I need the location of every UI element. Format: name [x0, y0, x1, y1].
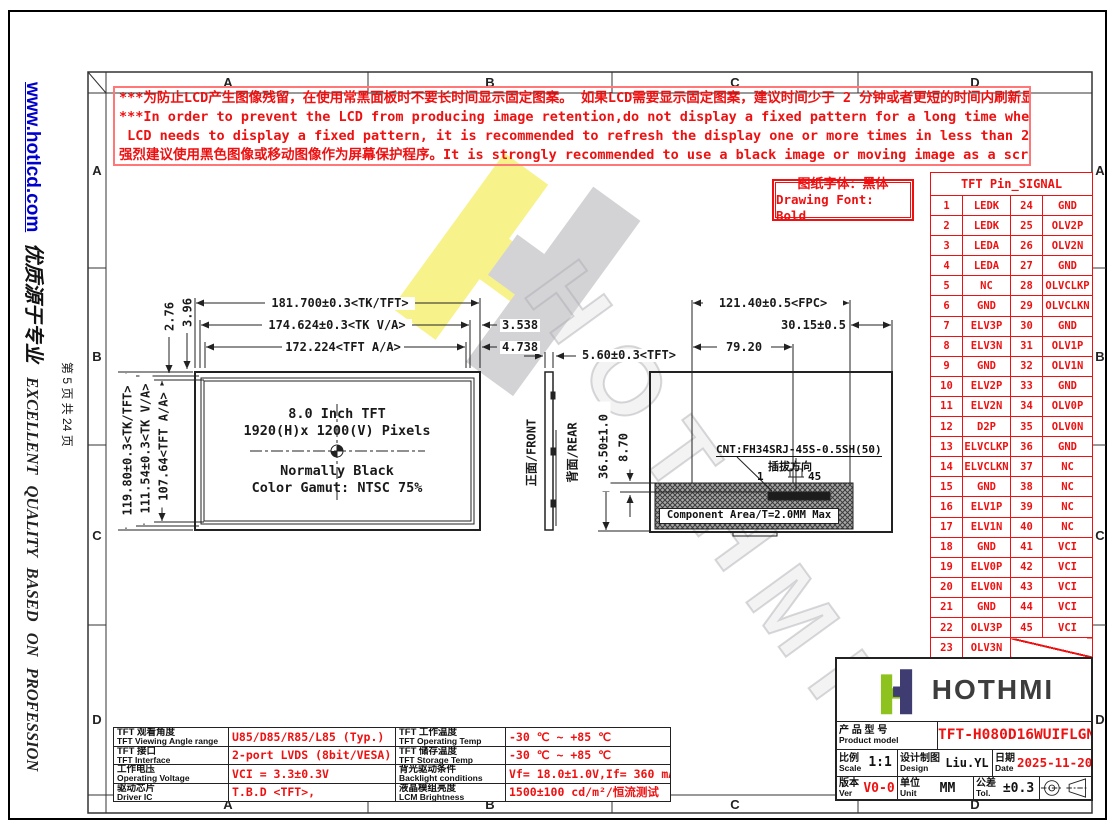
unit-cell: 单位 Unit MM — [897, 777, 973, 799]
spec-label-en: TFT Operating Temp — [399, 737, 502, 746]
pin-row: 22OLV3P45VCI — [931, 617, 1093, 637]
pin-number: 28 — [1011, 276, 1043, 296]
frame-row-label-right: B — [1093, 349, 1107, 364]
pin-signal: OLV0P — [1043, 396, 1093, 416]
panel-size-line2: 1920(H)x 1200(V) Pixels — [237, 423, 437, 440]
spec-row: TFT 观看角度TFT Viewing Angle rangeU85/D85/R… — [114, 728, 671, 747]
pin-number: 35 — [1011, 417, 1043, 437]
hothmi-logo-icon — [874, 664, 926, 716]
pin-signal: VCI — [1043, 617, 1093, 637]
spec-value-cell: VCI = 3.3±0.3V — [229, 765, 396, 784]
pin-signal: OLV2N — [1043, 236, 1093, 256]
pin-signal: OLV1P — [1043, 336, 1093, 356]
spec-label-cell: 背光驱动条件Backlight conditions — [396, 765, 506, 784]
version-cell: 版本 Ver V0-0 — [837, 777, 897, 799]
spec-value: VCI = 3.3±0.3V — [232, 767, 392, 781]
date-label-en: Date — [995, 764, 1015, 774]
pin-end-number: 45 — [808, 470, 821, 483]
spec-value-cell: -30 ℃ ~ +85 ℃ — [506, 728, 671, 747]
pin-number: 23 — [931, 638, 963, 658]
pin-number: 21 — [931, 597, 963, 617]
connector-part-number: CNT:FH34SRJ-45S-0.5SH(50) — [716, 443, 882, 457]
pin-number: 31 — [1011, 336, 1043, 356]
spec-value: 1500±100 cd/m²/恒流测试 — [509, 784, 667, 800]
pin-row: 12D2P35OLV0N — [931, 417, 1093, 437]
slogan-english: EXCELLENT QUALITY BASED ON PROFESSION — [23, 377, 42, 771]
spec-label-cell: 驱动芯片Driver IC — [114, 783, 229, 802]
pin-row: 9GND32OLV1N — [931, 356, 1093, 376]
slogan-chinese: 优质源于专业 — [22, 243, 44, 363]
dim-fpc-right: 30.15±0.5 — [760, 319, 848, 332]
pin-signal: GND — [1043, 196, 1093, 216]
spec-row: TFT 接口TFT Interface2-port LVDS (8bit/VES… — [114, 746, 671, 765]
dim-connector-offset: 8.70 — [618, 426, 631, 470]
model-label-cell: 产 品 型 号 Product model — [837, 722, 937, 749]
spec-label-cell: TFT 观看角度TFT Viewing Angle range — [114, 728, 229, 747]
pin-number: 19 — [931, 557, 963, 577]
dim-top-offset-2: 2.76 — [164, 297, 177, 337]
pin-number: 12 — [931, 417, 963, 437]
pin-number: 11 — [931, 396, 963, 416]
pin-signal: OLVCLKN — [1043, 296, 1093, 316]
pin-number: 3 — [931, 236, 963, 256]
pin-number: 18 — [931, 537, 963, 557]
pin-row: 23OLV3N — [931, 638, 1093, 658]
pin-signal: OLV3N — [963, 638, 1011, 658]
pin-number: 29 — [1011, 296, 1043, 316]
version-value: V0-0 — [863, 781, 894, 796]
pin-signal: NC — [1043, 477, 1093, 497]
pin-number: 32 — [1011, 356, 1043, 376]
spec-label-cell: 液晶模组亮度LCM Brightness — [396, 783, 506, 802]
pin-signal: ELV2P — [963, 376, 1011, 396]
pin-number: 38 — [1011, 477, 1043, 497]
spec-label-en: TFT Interface — [117, 756, 225, 765]
panel-size-line1: 8.0 Inch TFT — [237, 406, 437, 423]
designer-name: Liu.YL — [945, 756, 988, 770]
pin-row: 21GND44VCI — [931, 597, 1093, 617]
pin-signal: OLV1N — [1043, 356, 1093, 376]
pin-number: 7 — [931, 316, 963, 336]
dim-right-offset-1: 3.538 — [500, 319, 540, 332]
tolerance-label-en: Tol. — [976, 789, 996, 799]
design-label-en: Design — [900, 764, 940, 774]
spec-value: -30 ℃ ~ +85 ℃ — [509, 748, 667, 762]
pin-number: 37 — [1011, 457, 1043, 477]
pin-signal: OLV3P — [963, 617, 1011, 637]
pin-signal: ELV1P — [963, 497, 1011, 517]
model-value-cell: TFT-H080D16WUIFLGN40 — [937, 722, 1091, 749]
website-link[interactable]: www.hotlcd.com — [22, 82, 43, 232]
unit-label: 单位 Unit — [898, 778, 920, 799]
scale-value: 1:1 — [868, 755, 891, 770]
panel-mode-text: Normally Black Color Gamut: NTSC 75% — [237, 463, 437, 497]
pin-signal: ELV1N — [963, 517, 1011, 537]
pin-number: 17 — [931, 517, 963, 537]
pin-signal: ELVCLKN — [963, 457, 1011, 477]
pin-signal: GND — [1043, 256, 1093, 276]
pin-signal-table: TFT Pin_SIGNAL 1LEDK24GND2LEDK25OLV2P3LE… — [930, 172, 1093, 658]
dim-outline-height: 119.80±0.3<TK/TFT> — [122, 374, 135, 528]
product-model: TFT-H080D16WUIFLGN40 — [938, 727, 1091, 743]
pin-number: 14 — [931, 457, 963, 477]
unit-value: MM — [940, 781, 956, 796]
pin-signal: ELV3N — [963, 336, 1011, 356]
pin-signal: OLV2P — [1043, 216, 1093, 236]
page-number: 第 5 页 共 24 页 — [59, 362, 76, 482]
pin-table-title: TFT Pin_SIGNAL — [931, 173, 1093, 196]
pin-number: 39 — [1011, 497, 1043, 517]
spec-value-cell: T.B.D <TFT>, — [229, 783, 396, 802]
frame-row-label-right: A — [1093, 163, 1107, 178]
pin-signal: GND — [963, 597, 1011, 617]
pin-number: 13 — [931, 437, 963, 457]
dim-va-width: 174.624±0.3<TK V/A> — [262, 319, 412, 332]
pin-row: 7ELV3P30GND — [931, 316, 1093, 336]
pin-number: 26 — [1011, 236, 1043, 256]
pin-row: 13ELVCLKP36GND — [931, 437, 1093, 457]
pin-number: 9 — [931, 356, 963, 376]
pin-row: 16ELV1P39NC — [931, 497, 1093, 517]
spec-value: 2-port LVDS (8bit/VESA) — [232, 748, 392, 762]
spec-label-cell: TFT 储存温度TFT Storage Temp — [396, 746, 506, 765]
frame-row-label-left: A — [89, 163, 105, 178]
pin-number: 2 — [931, 216, 963, 236]
version-label: 版本 Ver — [837, 778, 859, 799]
spec-label-en: Driver IC — [117, 793, 225, 802]
pin-number: 43 — [1011, 577, 1043, 597]
pin-number: 41 — [1011, 537, 1043, 557]
spec-value-cell: U85/D85/R85/L85 (Typ.) — [229, 728, 396, 747]
spec-value-cell: Vf= 18.0±1.0V,If= 360 mA — [506, 765, 671, 784]
spec-value-cell: -30 ℃ ~ +85 ℃ — [506, 746, 671, 765]
pin-signal: NC — [1043, 497, 1093, 517]
pin-number: 8 — [931, 336, 963, 356]
pin-signal: ELV2N — [963, 396, 1011, 416]
pin-signal: GND — [963, 296, 1011, 316]
frame-row-label-right: C — [1093, 528, 1107, 543]
version-label-en: Ver — [839, 789, 859, 799]
pin-number: 16 — [931, 497, 963, 517]
pin-signal: LEDK — [963, 216, 1011, 236]
pin-number: 6 — [931, 296, 963, 316]
dim-aa-height: 107.64<TFT A/A> — [158, 386, 171, 508]
design-label: 设计制图 Design — [898, 753, 940, 774]
dim-outline-width: 181.700±0.3<TK/TFT> — [265, 297, 415, 310]
sidebar-vertical-text: www.hotlcd.com 优质源于专业 EXCELLENT QUALITY … — [21, 82, 50, 818]
dim-thickness: 5.60±0.3<TFT> — [580, 349, 678, 362]
pin-number: 27 — [1011, 256, 1043, 276]
spec-value-cell: 1500±100 cd/m²/恒流测试 — [506, 783, 671, 802]
pin-row: 17ELV1N40NC — [931, 517, 1093, 537]
pin-number: 40 — [1011, 517, 1043, 537]
pin-number: 1 — [931, 196, 963, 216]
scale-label: 比例 Scale — [837, 753, 861, 774]
pin-number: 45 — [1011, 617, 1043, 637]
pin-row: 1LEDK24GND — [931, 196, 1093, 216]
panel-size-text: 8.0 Inch TFT 1920(H)x 1200(V) Pixels — [237, 406, 437, 440]
hothmi-logo-text: HOTHMI — [932, 674, 1054, 706]
pin-signal: GND — [1043, 437, 1093, 457]
pin-signal: NC — [1043, 517, 1093, 537]
pin-signal: NC — [963, 276, 1011, 296]
unit-label-en: Unit — [900, 789, 920, 799]
pin-number: 24 — [1011, 196, 1043, 216]
dim-fpc-width: 121.40±0.5<FPC> — [703, 297, 843, 310]
scale-cell: 比例 Scale 1:1 — [837, 750, 897, 776]
spec-label-en: Backlight conditions — [399, 774, 502, 783]
pin-row: 20ELV0N43VCI — [931, 577, 1093, 597]
pin-signal: ELV3P — [963, 316, 1011, 336]
design-cell: 设计制图 Design Liu.YL — [897, 750, 992, 776]
rear-view — [598, 300, 892, 536]
logo-row: HOTHMI — [837, 659, 1091, 721]
pin-number: 36 — [1011, 437, 1043, 457]
tolerance-value: ±0.3 — [1003, 781, 1034, 796]
pin-number: 20 — [931, 577, 963, 597]
font-note-en: Drawing Font: Bold — [776, 192, 910, 224]
pin-row: 2LEDK25OLV2P — [931, 216, 1093, 236]
pin-signal: GND — [963, 477, 1011, 497]
warning-line: LCD needs to display a fixed pattern, it… — [119, 127, 1025, 146]
projection-cell — [1039, 777, 1091, 799]
pin-signal: GND — [963, 356, 1011, 376]
pin-signal: LEDK — [963, 196, 1011, 216]
spec-label-cell: TFT 接口TFT Interface — [114, 746, 229, 765]
image-retention-warning: ***为防止LCD产生图像残留，在使用常黑面板时不要长时间显示固定图案。 如果L… — [113, 86, 1031, 166]
dim-va-height: 111.54±0.3<TK V/A> — [140, 374, 153, 524]
pin-number: 34 — [1011, 396, 1043, 416]
pin-signal: LEDA — [963, 236, 1011, 256]
date-value: 2025-11-20 — [1017, 755, 1091, 770]
frame-col-label-bottom: C — [715, 797, 755, 812]
warning-line: ***In order to prevent the LCD from prod… — [119, 108, 1025, 127]
pin-signal: NC — [1043, 457, 1093, 477]
pin-number: 10 — [931, 376, 963, 396]
spec-label-cell: 工作电压Operating Voltage — [114, 765, 229, 784]
warning-line: 强烈建议使用黑色图像或移动图像作为屏幕保护程序。It is strongly r… — [119, 146, 1025, 165]
pin-row: 6GND29OLVCLKN — [931, 296, 1093, 316]
spec-value: T.B.D <TFT>, — [232, 785, 392, 799]
dim-aa-width: 172.224<TFT A/A> — [282, 341, 404, 354]
pin-signal: ELV0N — [963, 577, 1011, 597]
pin-signal: ELV0P — [963, 557, 1011, 577]
warning-line: ***为防止LCD产生图像残留，在使用常黑面板时不要长时间显示固定图案。 如果L… — [119, 89, 1025, 108]
pin-row: 8ELV3N31OLV1P — [931, 336, 1093, 356]
pin-signal: LEDA — [963, 256, 1011, 276]
pin-number: 30 — [1011, 316, 1043, 336]
spec-value-cell: 2-port LVDS (8bit/VESA) — [229, 746, 396, 765]
title-block: HOTHMI 产 品 型 号 Product model TFT-H080D16… — [835, 657, 1093, 801]
pin-row: 4LEDA27GND — [931, 256, 1093, 276]
pin-number: 5 — [931, 276, 963, 296]
spec-label-en: Operating Voltage — [117, 774, 225, 783]
spec-label-en: TFT Viewing Angle range — [117, 737, 225, 746]
pin-row: 11ELV2N34OLV0P — [931, 396, 1093, 416]
dim-rear-height: 36.50±1.0 — [598, 402, 611, 492]
pin-number: 42 — [1011, 557, 1043, 577]
pin-number: 22 — [931, 617, 963, 637]
model-row: 产 品 型 号 Product model TFT-H080D16WUIFLGN… — [837, 721, 1091, 749]
projection-symbol-icon — [1040, 777, 1091, 799]
side-rear-label: 背面/REAR — [567, 409, 580, 497]
pin-row: 5NC28OLVCLKP — [931, 276, 1093, 296]
frame-row-label-left: D — [89, 712, 105, 727]
pin-start-number: 1 — [757, 470, 764, 483]
spec-label-en: LCM Brightness — [399, 793, 502, 802]
frame-row-label-right: D — [1093, 712, 1107, 727]
pin-signal: GND — [1043, 316, 1093, 336]
pin-signal: OLVCLKP — [1043, 276, 1093, 296]
spec-table: TFT 观看角度TFT Viewing Angle rangeU85/D85/R… — [113, 727, 671, 802]
date-label: 日期 Date — [993, 753, 1015, 774]
spec-row: 驱动芯片Driver ICT.B.D <TFT>,液晶模组亮度LCM Brigh… — [114, 783, 671, 802]
dim-fpc-left: 79.20 — [717, 341, 771, 354]
datasheet-page: { "sidebar": { "url": "www.hotlcd.com", … — [0, 0, 1115, 829]
pin-signal: D2P — [963, 417, 1011, 437]
pin-signal: VCI — [1043, 537, 1093, 557]
pin-number: 15 — [931, 477, 963, 497]
insertion-direction-label: 插拔方向 — [768, 458, 812, 474]
pin-row: 19ELV0P42VCI — [931, 557, 1093, 577]
pin-number: 33 — [1011, 376, 1043, 396]
pin-signal: GND — [1043, 376, 1093, 396]
pin-number: 4 — [931, 256, 963, 276]
scale-label-en: Scale — [839, 764, 861, 774]
spec-value: U85/D85/R85/L85 (Typ.) — [232, 730, 392, 744]
spec-row: 工作电压Operating VoltageVCI = 3.3±0.3V背光驱动条… — [114, 765, 671, 784]
dim-right-offset-2: 4.738 — [500, 341, 540, 354]
pin-signal: OLV0N — [1043, 417, 1093, 437]
font-note-cn: 图纸字体：黑体 — [797, 176, 888, 192]
frame-row-label-left: B — [89, 349, 105, 364]
tolerance-cell: 公差 Tol. ±0.3 — [973, 777, 1039, 799]
pin-signal: VCI — [1043, 557, 1093, 577]
side-front-label: 正面/FRONT — [526, 409, 539, 497]
tolerance-label: 公差 Tol. — [974, 778, 996, 799]
dim-top-offset-1: 3.96 — [182, 293, 195, 333]
pin-number: 44 — [1011, 597, 1043, 617]
spec-label-en: TFT Storage Temp — [399, 756, 502, 765]
pin-number: 25 — [1011, 216, 1043, 236]
pin-row: 18GND41VCI — [931, 537, 1093, 557]
frame-row-label-left: C — [89, 528, 105, 543]
pin-row: 15GND38NC — [931, 477, 1093, 497]
spec-value: Vf= 18.0±1.0V,If= 360 mA — [509, 767, 667, 781]
pin-signal: VCI — [1043, 597, 1093, 617]
panel-mode-line2: Color Gamut: NTSC 75% — [237, 480, 437, 497]
version-row: 版本 Ver V0-0 单位 Unit MM 公差 Tol. ±0.3 — [837, 776, 1091, 799]
spec-label-cell: TFT 工作温度TFT Operating Temp — [396, 728, 506, 747]
pin-signal: GND — [963, 537, 1011, 557]
spec-value: -30 ℃ ~ +85 ℃ — [509, 730, 667, 744]
drawing-font-note-inner: 图纸字体：黑体 Drawing Font: Bold — [775, 182, 911, 218]
pin-cell-empty — [1011, 638, 1093, 658]
pin-signal: VCI — [1043, 577, 1093, 597]
component-area-label: Component Area/T=2.0MM Max — [659, 508, 839, 524]
model-label-en: Product model — [839, 736, 899, 746]
pin-row: 10ELV2P33GND — [931, 376, 1093, 396]
pin-row: 14ELVCLKN37NC — [931, 457, 1093, 477]
pin-signal: ELVCLKP — [963, 437, 1011, 457]
date-cell: 日期 Date 2025-11-20 — [992, 750, 1091, 776]
pin-row: 3LEDA26OLV2N — [931, 236, 1093, 256]
panel-mode-line1: Normally Black — [237, 463, 437, 480]
scale-row: 比例 Scale 1:1 设计制图 Design Liu.YL 日期 Date … — [837, 749, 1091, 776]
model-label: 产 品 型 号 Product model — [837, 725, 899, 746]
drawing-font-note: 图纸字体：黑体 Drawing Font: Bold — [772, 179, 914, 221]
